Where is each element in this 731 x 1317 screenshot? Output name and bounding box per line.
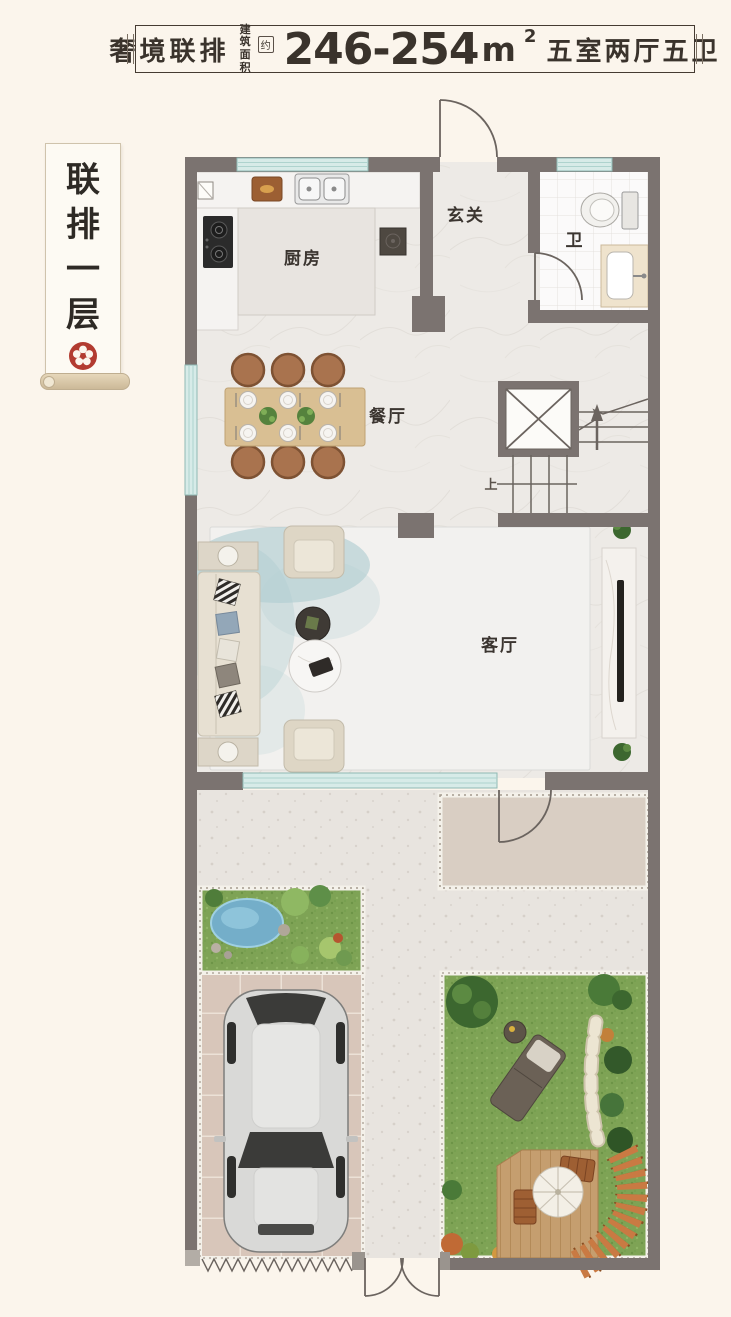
banner-char: 排	[66, 203, 100, 248]
banner-char: 层	[66, 293, 100, 338]
kitchen-sink	[295, 174, 349, 204]
room-label-foyer: 玄关	[447, 205, 485, 226]
parasol	[533, 1167, 583, 1217]
banner-paper: 联 排 一 层	[45, 143, 121, 381]
garden-pond-bed	[200, 885, 363, 973]
car-mirror	[214, 1136, 226, 1142]
flue-shaft	[198, 182, 213, 199]
bath-window	[557, 158, 612, 171]
area-exponent: 2	[524, 26, 537, 47]
approx-mark: 约	[258, 36, 274, 53]
entry-door	[440, 100, 497, 157]
title-box: 奢境联排 建筑 面积 约 246-254 m 2 五室两厅五卫	[135, 25, 695, 73]
floor-banner: 联 排 一 层	[40, 140, 128, 390]
banner-roller	[40, 373, 130, 390]
kitchen-window	[237, 158, 368, 171]
floorplan-page: 奢境联排 建筑 面积 约 246-254 m 2 五室两厅五卫 联 排 一 层	[0, 0, 731, 1317]
banner-char: 一	[66, 248, 100, 293]
living-room-furniture	[185, 519, 636, 772]
yard-gate	[365, 1258, 439, 1296]
seal-stamp-icon	[68, 341, 98, 371]
car-mirror	[346, 1136, 358, 1142]
title-scroll-rod-right	[696, 34, 703, 64]
armchair	[284, 720, 344, 772]
cooktop	[203, 216, 233, 268]
area-value: 246-254	[284, 24, 479, 75]
side-table	[198, 542, 258, 570]
title-scroll-rod-left	[127, 34, 134, 64]
stairs-up-label: 上	[484, 478, 497, 493]
fence-zigzag	[202, 1259, 352, 1271]
room-label-living: 客厅	[480, 635, 519, 656]
rooms-summary: 五室两厅五卫	[546, 31, 720, 68]
tv	[617, 580, 624, 702]
vanity-sink	[601, 245, 648, 307]
kitchen-appliance	[380, 228, 406, 255]
room-label-bath: 卫	[566, 231, 585, 251]
lawn-garden	[441, 973, 648, 1266]
area-label: 建筑 面积	[240, 24, 252, 75]
dining-set	[225, 354, 365, 478]
tv-console	[602, 548, 636, 738]
banner-char: 联	[66, 158, 100, 203]
room-label-kitchen: 厨房	[284, 248, 322, 269]
dining-window	[185, 365, 197, 495]
side-table	[198, 738, 258, 766]
area-unit: m	[482, 30, 516, 69]
elevator	[498, 381, 579, 457]
sofa	[198, 572, 260, 736]
car	[214, 990, 358, 1252]
toilet	[581, 192, 638, 229]
patio-paving	[440, 795, 648, 888]
patio-slider-window	[243, 773, 497, 788]
room-label-dining: 餐厅	[369, 406, 407, 427]
banner-roller-end	[43, 376, 55, 388]
garden-table	[504, 1021, 526, 1043]
armchair	[284, 526, 344, 578]
